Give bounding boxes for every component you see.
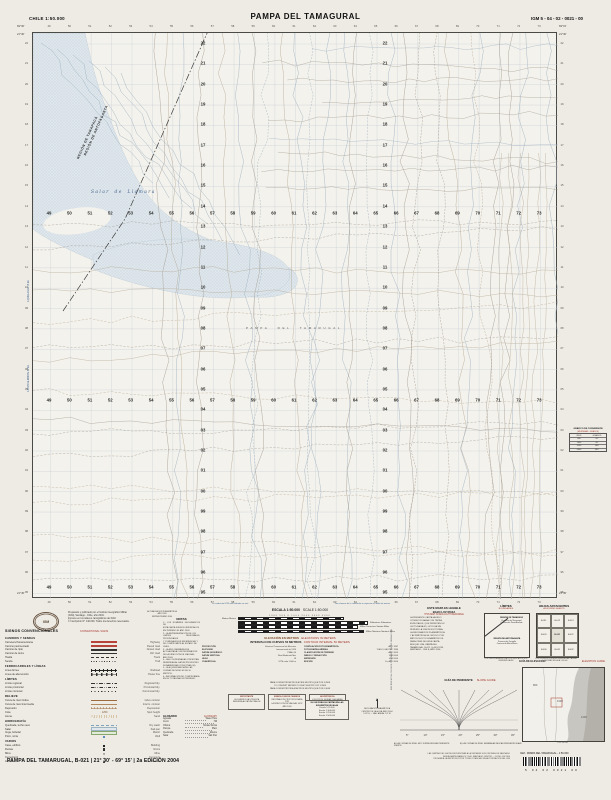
glossary-translation: Salt Pan <box>208 735 217 738</box>
svg-text:15°: 15° <box>441 733 445 737</box>
conversion-cell: 90° <box>588 442 606 445</box>
bar-scale-icon <box>238 630 364 634</box>
datum-col-left: PROYECCIÓNUniversal Transversal de Merca… <box>202 646 296 664</box>
grid-label-northing: 20 <box>25 82 28 86</box>
grid-label-easting: 55 <box>170 24 173 28</box>
scales-box-item: Escala 1:500.000 <box>307 715 347 718</box>
info-box: SIMBOLOGÍA DE CAMINOSINFORMACIÓN PROPORC… <box>268 694 305 710</box>
grid-label-easting: 59 <box>252 24 255 28</box>
legend-label-es: Límite provincial <box>5 686 88 689</box>
legend-label-es: Línea de alta tensión <box>5 673 88 676</box>
grid-label-easting: 72 <box>517 24 520 28</box>
legend-rows: CAMINOS Y SENDASCarretera PanamericanaHi… <box>5 635 160 763</box>
other-scales-box: EL IGM PUBLICA CARTAS EN LAS SIGUIENTES … <box>305 700 349 720</box>
grid-label-easting: 68 <box>435 600 438 604</box>
legend-label-es: Ruinas <box>5 748 88 751</box>
grid-label-northing: 10 <box>560 285 563 289</box>
slope-guide-heading: GUÍA DE PENDIENTE SLOPE GUIDE <box>420 678 520 682</box>
legend-label-es: Límite comunal <box>5 690 88 693</box>
grid-label-easting: 56 <box>190 24 193 28</box>
glossary-entry: SalarSalt Pan <box>163 735 217 738</box>
red-light-block: ESTE MAPA ES LEGIBLE BAJO LUZ ROJA THIS … <box>410 607 478 652</box>
limits-upper-line: Comuna de Pozo Almonte <box>495 622 528 624</box>
grid-label-northing: 14 <box>25 204 28 208</box>
legend-label-es: Quebrada, lecho seco <box>5 724 88 727</box>
elevation-guide-en: ELEVATION GUIDE <box>582 660 605 663</box>
legend-label-en: Marsh <box>120 731 160 734</box>
dotline-symbol-icon <box>91 689 117 693</box>
grid-label-easting: 49 <box>47 600 50 604</box>
grid-label-easting: 68 <box>435 24 438 28</box>
legend-label-en: Well <box>120 735 160 738</box>
grid-label-northing: 97 <box>25 550 28 554</box>
datum-row: CUADRÍCULAUTM cada 1.000 m <box>202 661 296 664</box>
legend-row: Camino de ripioGravel road <box>5 648 160 652</box>
corner-lon-tl: 69°30' <box>17 25 25 28</box>
grid-label-northing: 99 <box>560 509 563 513</box>
grid-label-northing: 96 <box>560 570 563 574</box>
map-frame <box>32 32 557 598</box>
legend-label-en: Track <box>120 656 160 659</box>
bar-scales: 1000 500 0 1000 2000 3000 4000 Metros Me… <box>202 615 398 634</box>
corner-lat-tr: 21°30' <box>559 33 567 36</box>
legend-row: ArenaSand <box>5 714 160 718</box>
grid-label-easting: 67 <box>415 24 418 28</box>
grid-label-northing: 20 <box>560 82 563 86</box>
power-symbol-icon <box>91 673 117 677</box>
bar-scale-icon <box>238 621 368 625</box>
declination-lines: DECLINACIÓN MAGNÉTICACENTRO DE LA HOJA, … <box>359 708 395 716</box>
grid-label-northing: 04 <box>25 407 28 411</box>
legend-label-es: Senda <box>5 660 88 663</box>
limits-lower-labels: REGIÓN DE ANTOFAGASTAProvincia de Tocopi… <box>487 638 527 646</box>
legend-row: Mina✕Mine <box>5 752 160 756</box>
datum-row: EDICIÓN2a, AÑO 2004 <box>304 661 398 664</box>
legend-label-en: Power line <box>120 673 160 676</box>
publication-line: © Inscripción N° 140.000. Todos los dere… <box>68 620 140 623</box>
legend-row: DepresiónDepression <box>5 706 160 710</box>
grid-label-northing: 04 <box>560 407 563 411</box>
grid-label-easting: 56 <box>190 600 193 604</box>
legend-title: SIGNOS CONVENCIONALES <box>5 629 58 633</box>
grid-label-northing: 02 <box>25 448 28 452</box>
legend-row: HuellaTrack <box>5 656 160 660</box>
svg-text:45°: 45° <box>511 733 515 737</box>
grid-label-northing: 98 <box>560 529 563 533</box>
conversion-cell: MILS <box>570 434 588 437</box>
elevation-guide-scale: 0 10 20 KM <box>522 742 603 744</box>
grid-label-easting: 60 <box>272 24 275 28</box>
slope-guide-diagram: 5°10°15°20°25°30°45° <box>398 684 520 742</box>
grid-label-easting: 66 <box>395 24 398 28</box>
grid-label-easting: 50 <box>68 24 71 28</box>
scale-note-right: Los números de la cuadrícula se expresan… <box>335 603 390 605</box>
legend-label-es: Pozo, noria <box>5 735 88 738</box>
legend-row: RuinasRuins <box>5 748 160 752</box>
grid-label-easting: 61 <box>292 24 295 28</box>
legend-label-en: Interm. contour <box>120 703 160 706</box>
grid-label-easting: 69 <box>456 24 459 28</box>
svg-text:1000: 1000 <box>557 699 563 703</box>
legend-label-en: Dry wash <box>120 724 160 727</box>
legend-label-es: Depresión <box>5 707 88 710</box>
datum-label: CUADRÍCULA <box>202 661 216 664</box>
grid-label-easting: 63 <box>333 24 336 28</box>
slope-guide-en: SLOPE GUIDE <box>477 678 496 682</box>
svg-text:20°: 20° <box>459 733 463 737</box>
legend-label-es: Arena <box>5 715 88 718</box>
grid-label-easting: 51 <box>88 600 91 604</box>
info-box-line: AÑO 2003 <box>271 706 304 708</box>
grid-label-easting: 54 <box>150 24 153 28</box>
legend-label-en: Communal bdy. <box>120 690 160 693</box>
legend-label-es: Curva de nivel índice <box>5 699 88 702</box>
grid-label-northing: 19 <box>560 102 563 106</box>
declination-arrow-icon <box>377 699 378 708</box>
adjoining-sheet-cell: B-012 <box>551 614 565 628</box>
grid-label-easting: 51 <box>88 24 91 28</box>
corner-lon-tr: 69°15' <box>559 25 567 28</box>
grid-label-northing: 99 <box>25 509 28 513</box>
bar-scale-icon <box>238 617 344 621</box>
svg-text:800: 800 <box>533 683 538 687</box>
datum-col-right: COMPILACIÓN FOTOGRAMÉTRICAAÑO 1997FOTOGR… <box>304 646 398 664</box>
grid-label-easting: 50 <box>68 600 71 604</box>
grid-label-northing: 00 <box>25 489 28 493</box>
grid-label-easting: 49 <box>47 24 50 28</box>
grid-label-northing: 09 <box>25 306 28 310</box>
grid-label-easting: 64 <box>354 24 357 28</box>
legend-row: Línea férreaRailroad <box>5 669 160 673</box>
grid-label-easting: 70 <box>476 24 479 28</box>
grid-label-northing: 16 <box>25 163 28 167</box>
legend-label-en: Provincial bdy. <box>120 686 160 689</box>
glossary: GLOSARIO GLOSSARY AguadaWater HoleCerroH… <box>163 715 217 739</box>
conversion-cell: 800 <box>570 438 588 441</box>
bar-scale-row: Millas Náuticas Nautical Miles <box>202 629 398 633</box>
legend-label-en: Spot height <box>120 711 160 714</box>
grid-label-easting: 71 <box>497 24 500 28</box>
elevation-heading: ELEVACIÓN EN METROS ELEVATIONS IN METERS… <box>202 636 398 644</box>
limits-box: REGIÓN DE TARAPACÁProvincia del Tamaruga… <box>484 613 530 658</box>
grid-label-easting: 52 <box>109 600 112 604</box>
grid-label-northing: 08 <box>25 326 28 330</box>
adjoining-title-en: ADJOINING SHEETS <box>530 608 578 611</box>
legend-label-es: Camino pavimentado <box>5 645 88 648</box>
legend-label-es: Curva de nivel intermedia <box>5 703 88 706</box>
grid-label-northing: 11 <box>561 265 564 269</box>
bar-scale-label: Kilómetros Kilometers <box>368 622 391 624</box>
scale-es: ESCALA 1:50.000 <box>272 608 300 612</box>
grid-label-northing: 07 <box>25 346 28 350</box>
grid-label-northing: 12 <box>560 245 563 249</box>
grid-label-easting: 62 <box>313 24 316 28</box>
pampa-label: PAMPA DEL TAMARUGAL <box>246 326 342 330</box>
interval-es: INTERVALO DE CURVAS 50 METROS <box>250 640 301 644</box>
glossary-term: Salar <box>163 735 185 738</box>
legend-row: Curva de nivel índiceIndex contour <box>5 699 160 703</box>
adjoining-sheet-cell: B-020 <box>537 628 551 642</box>
footer-right-line: PROHIBIDA LA REPRODUCCIÓN TOTAL O PARCIA… <box>340 758 510 761</box>
adjoining-sheet-cell: B-013 <box>564 614 578 628</box>
grid-label-northing: 00 <box>560 489 563 493</box>
legend-row: Carretera PanamericanaHighway <box>5 640 160 644</box>
barcode-digits: 5 04 02 0021 00 <box>523 768 581 772</box>
corner-lat-tl: 21°30' <box>17 33 25 36</box>
grid-label-northing: 08 <box>560 326 563 330</box>
legend-label-en: Building <box>120 744 160 747</box>
conversion-row: 6400360° <box>570 449 606 452</box>
conversion-cell: 360° <box>588 449 606 452</box>
conversion-line: PARA CONVERTIR PIES A METROS MULTIPLIQUE… <box>214 688 386 691</box>
grid-label-northing: 06 <box>560 367 563 371</box>
limits-title-en: BOUNDARIES <box>482 608 530 611</box>
legend-row: Quebrada, lecho secoDry wash <box>5 723 160 727</box>
grid-label-northing: 12 <box>25 245 28 249</box>
slope-caption-a: A) LAS CURVAS DE NIVEL MUY JUNTAS INDICA… <box>394 743 456 748</box>
grid-label-easting: 57 <box>211 24 214 28</box>
grid-label-northing: 17 <box>560 143 563 147</box>
grid-label-northing: 22 <box>25 41 28 45</box>
grid-label-easting: 66 <box>395 600 398 604</box>
legend-label-es: Camino de tierra <box>5 652 88 655</box>
grid-label-northing: 13 <box>560 224 563 228</box>
footer-sheet-reference: PAMPA DEL TAMARUGAL, B-021 | 21° 30' - 6… <box>7 758 179 764</box>
grid-label-easting: 54 <box>150 600 153 604</box>
grid-label-northing: 09 <box>560 306 563 310</box>
legend-label-en: Ruins <box>120 748 160 751</box>
magnetic-declination: DECLINACIÓN MAGNÉTICACENTRO DE LA HOJA, … <box>359 699 395 716</box>
grid-label-northing: 22 <box>560 41 563 45</box>
legend-row: Cota∙ 1250Spot height <box>5 710 160 714</box>
adjoining-sheet-cell: B-021 <box>551 628 565 642</box>
grid-label-northing: 18 <box>560 122 563 126</box>
svg-text:1200: 1200 <box>581 715 587 719</box>
legend-row: Casa, edificioBuilding <box>5 744 160 748</box>
scale-grid-notes: La cuadrícula UTM está indicada en azul … <box>212 603 390 605</box>
grid-label-northing: 16 <box>560 163 563 167</box>
legend-label-es: Mina <box>5 752 88 755</box>
info-box: IMPORTANTELA CUADRÍCULA UTM ESTÁREFERIDA… <box>228 694 265 710</box>
dots-symbol-icon <box>91 660 117 664</box>
svg-text:30°: 30° <box>494 733 498 737</box>
adjoining-sheets-grid: B-011B-012B-013B-020B-021B-022B-030B-031… <box>536 613 579 658</box>
scale-note-left: La cuadrícula UTM está indicada en azul <box>212 603 248 605</box>
grid-label-northing: 96 <box>25 570 28 574</box>
legend-row: Límite provincialProvincial bdy. <box>5 686 160 690</box>
notas-line: EN SU TOTALIDAD EN TERRENO. <box>163 678 200 681</box>
grid-label-northing: 13 <box>25 224 28 228</box>
salar-label: Salar de Llamara <box>91 190 156 195</box>
conversion-chart: GRÁFICO DE CONVERSIÓN (MILÉSIMAS - GRADO… <box>569 428 607 452</box>
scale-en: SCALE 1:50.000 <box>303 608 328 612</box>
legend-title-en: CONVENTIONAL SIGNS <box>80 630 108 633</box>
conversion-cell: 45° <box>588 438 606 441</box>
adjoining-sheet-cell: B-011 <box>537 614 551 628</box>
info-box-line: REFERIDA AL DATUM PSAD-56 <box>230 701 263 703</box>
slope-guide-captions: A) LAS CURVAS DE NIVEL MUY JUNTAS INDICA… <box>394 743 522 748</box>
notas-title: NOTAS <box>163 617 200 621</box>
sheet-code: IGM 5 - 04 - 02 - 0021 - 00 <box>440 16 583 21</box>
elevation-guide-heading: GUÍA DE ELEVACIÓN ELEVATION GUIDE <box>519 660 605 663</box>
limits-upper-labels: REGIÓN DE TARAPACÁProvincia del Tamaruga… <box>495 617 528 625</box>
svg-text:10°: 10° <box>424 733 428 737</box>
grid-label-northing: 01 <box>25 468 28 472</box>
grid-label-northing: 19 <box>25 102 28 106</box>
barcode-label: IGM - PAMPA DEL TAMARUGAL - 1:50.000 <box>520 752 604 755</box>
grid-label-easting: 58 <box>231 24 234 28</box>
grid-label-northing: 02 <box>560 448 563 452</box>
legend-label-en: Railroad <box>120 669 160 672</box>
notas-block: NOTAS 1.- LOS NOMBRES GEOGRÁFICOS DEESTA… <box>163 617 200 681</box>
grid-label-northing: 98 <box>25 529 28 533</box>
grid-label-easting: 52 <box>109 24 112 28</box>
legend-label-en: Dirt road <box>120 652 160 655</box>
datum-label: EDICIÓN <box>304 661 313 664</box>
grid-label-easting: 72 <box>517 600 520 604</box>
grid-label-northing: 21 <box>560 61 563 65</box>
elevation-guide-es: GUÍA DE ELEVACIÓN <box>519 660 545 663</box>
conversion-cell: GRADOS <box>588 434 606 437</box>
grid-label-northing: 21 <box>25 61 28 65</box>
map-sheet-page: CHILE 1:50.000 PAMPA DEL TAMAGURAL IGM 5… <box>0 0 611 800</box>
legend-row: Límite regionalRegional bdy. <box>5 682 160 686</box>
publication-note: Preparado y publicado por el Instituto G… <box>68 611 140 624</box>
slope-guide-es: GUÍA DE PENDIENTE <box>444 678 472 682</box>
grid-label-northing: 05 <box>560 387 563 391</box>
legend-label-es: Casa, edificio <box>5 744 88 747</box>
red-light-line: SANTIAGO - CHILE, AÑO 2004. <box>410 649 478 652</box>
legend-row: Pozo, noriaWell <box>5 735 160 739</box>
legend-row: Límite comunalCommunal bdy. <box>5 689 160 693</box>
legend-row: SendaTrail <box>5 660 160 664</box>
grid-label-easting: 55 <box>170 600 173 604</box>
datum-info: PROYECCIÓNUniversal Transversal de Merca… <box>202 646 398 664</box>
conversion-chart-table: MILSGRADOS80045°160090°3200180°6400360° <box>569 433 607 452</box>
legend-label-es: Línea férrea <box>5 669 88 672</box>
grid-label-easting: 53 <box>129 600 132 604</box>
datum-value: UTM cada 1.000 m <box>279 661 296 664</box>
barcode-icon <box>523 757 581 767</box>
bar-scale-icon <box>238 625 358 629</box>
grid-label-northing: 18 <box>25 122 28 126</box>
legend-label-en: Depression <box>120 707 160 710</box>
conversion-cell: 180° <box>588 445 606 448</box>
adjoining-heading: HOJAS ADYACENTES ADJOINING SHEETS <box>530 605 578 611</box>
conversion-cell: 3200 <box>570 445 588 448</box>
svg-text:25°: 25° <box>476 733 480 737</box>
conversion-cell: 1600 <box>570 442 588 445</box>
legend-label-es: Vega, bofedal <box>5 731 88 734</box>
slope-caption-b: B) LAS CURVAS DE NIVEL SEPARADAS INDICAN… <box>460 743 522 748</box>
footer-sales-note: LAS CARTAS DEL IGM SE ENCUENTRAN A LA VE… <box>340 753 510 761</box>
legend-label-es: Carretera Panamericana <box>5 641 88 644</box>
grid-label-easting: 65 <box>374 24 377 28</box>
limits-heading: LÍMITES BOUNDARIES <box>482 605 530 611</box>
grid-label-northing: 01 <box>560 468 563 472</box>
legend-row: Curva de nivel intermediaInterm. contour <box>5 702 160 706</box>
corner-lat-br: 21°45' <box>559 592 567 595</box>
edge-note-2: A POZO ALMONTE 42 km <box>28 365 30 392</box>
red-light-en: THIS MAP IS RED-LIGHT READABLE <box>410 614 478 616</box>
grid-label-northing: 17 <box>25 143 28 147</box>
grid-label-easting: 53 <box>129 24 132 28</box>
grid-label-easting: 70 <box>476 600 479 604</box>
legend-label-en: Mine <box>120 752 160 755</box>
legend-label-es: Huella <box>5 656 88 659</box>
sand-symbol-icon <box>91 714 117 718</box>
limits-lower-line: Comuna de María Elena <box>487 643 527 645</box>
legend-label-en: Sand <box>120 715 160 718</box>
elevation-guide-box: 80010001200 <box>522 667 605 742</box>
well-symbol-icon <box>91 735 117 739</box>
legend-row: Camino pavimentadoPaved road <box>5 644 160 648</box>
conversion-cell: 6400 <box>570 449 588 452</box>
scale-heading: ESCALA 1:50.000 SCALE 1:50.000 <box>202 608 398 612</box>
adjoining-sheet-cell: B-030 <box>537 643 551 657</box>
legend-row: Línea de alta tensiónPower line <box>5 673 160 677</box>
legend-label-es: Salar <box>5 728 88 731</box>
grid-label-northing: 14 <box>560 204 563 208</box>
edge-note-1: A QUILLAGUA 18 km <box>28 280 30 302</box>
grid-label-northing: 11 <box>25 265 28 269</box>
grid-label-northing: 15 <box>560 183 563 187</box>
bar-scale-label: Metros Meters <box>202 618 238 620</box>
grid-label-northing: 07 <box>560 346 563 350</box>
legend-label-en: Highway <box>120 641 160 644</box>
legend-row: Vega, bofedalMarsh <box>5 731 160 735</box>
adjoining-sheet-cell: B-032 <box>564 643 578 657</box>
grid-label-northing: 03 <box>560 428 563 432</box>
legend-label-en: Index contour <box>120 699 160 702</box>
legend-label-es: Cota <box>5 711 88 714</box>
corner-lat-bl: 21°45' <box>17 592 25 595</box>
vertical-reference-note: REFERENCIA CRONOLÓGICA DE LA INFORMACIÓN <box>391 629 393 690</box>
interval-en: CONTOUR INTERVAL 50 METERS <box>304 640 350 644</box>
legend-label-es: Camino de ripio <box>5 648 88 651</box>
grid-label-easting: 73 <box>538 24 541 28</box>
legend-label-en: Gravel road <box>120 648 160 651</box>
legend-row: SalarSalt pan <box>5 727 160 731</box>
legend-label-en: Regional bdy. <box>120 682 160 685</box>
grid-label-easting: 69 <box>456 600 459 604</box>
declination-line: 1°42' E — VAR. ANUAL 7,8' W <box>359 713 395 716</box>
svg-text:5°: 5° <box>406 733 408 737</box>
bar-scale-label: Millas Terrestres Statute Miles <box>358 626 389 628</box>
grid-label-northing: 97 <box>560 550 563 554</box>
grid-label-northing: 95 <box>25 590 28 594</box>
legend-label-es: Límite regional <box>5 682 88 685</box>
grid-label-easting: 67 <box>415 600 418 604</box>
legend-label-en: Trail <box>120 660 160 663</box>
legend-row: Camino de tierraDirt road <box>5 652 160 656</box>
grid-label-northing: 15 <box>25 183 28 187</box>
unit-conversion-note: PARA CONVERTIR METROS A PIES MULTIPLIQUE… <box>214 682 386 691</box>
adjoining-sheet-cell: B-022 <box>564 628 578 642</box>
grid-label-northing: 03 <box>25 428 28 432</box>
adjoining-sheet-cell: B-031 <box>551 643 565 657</box>
